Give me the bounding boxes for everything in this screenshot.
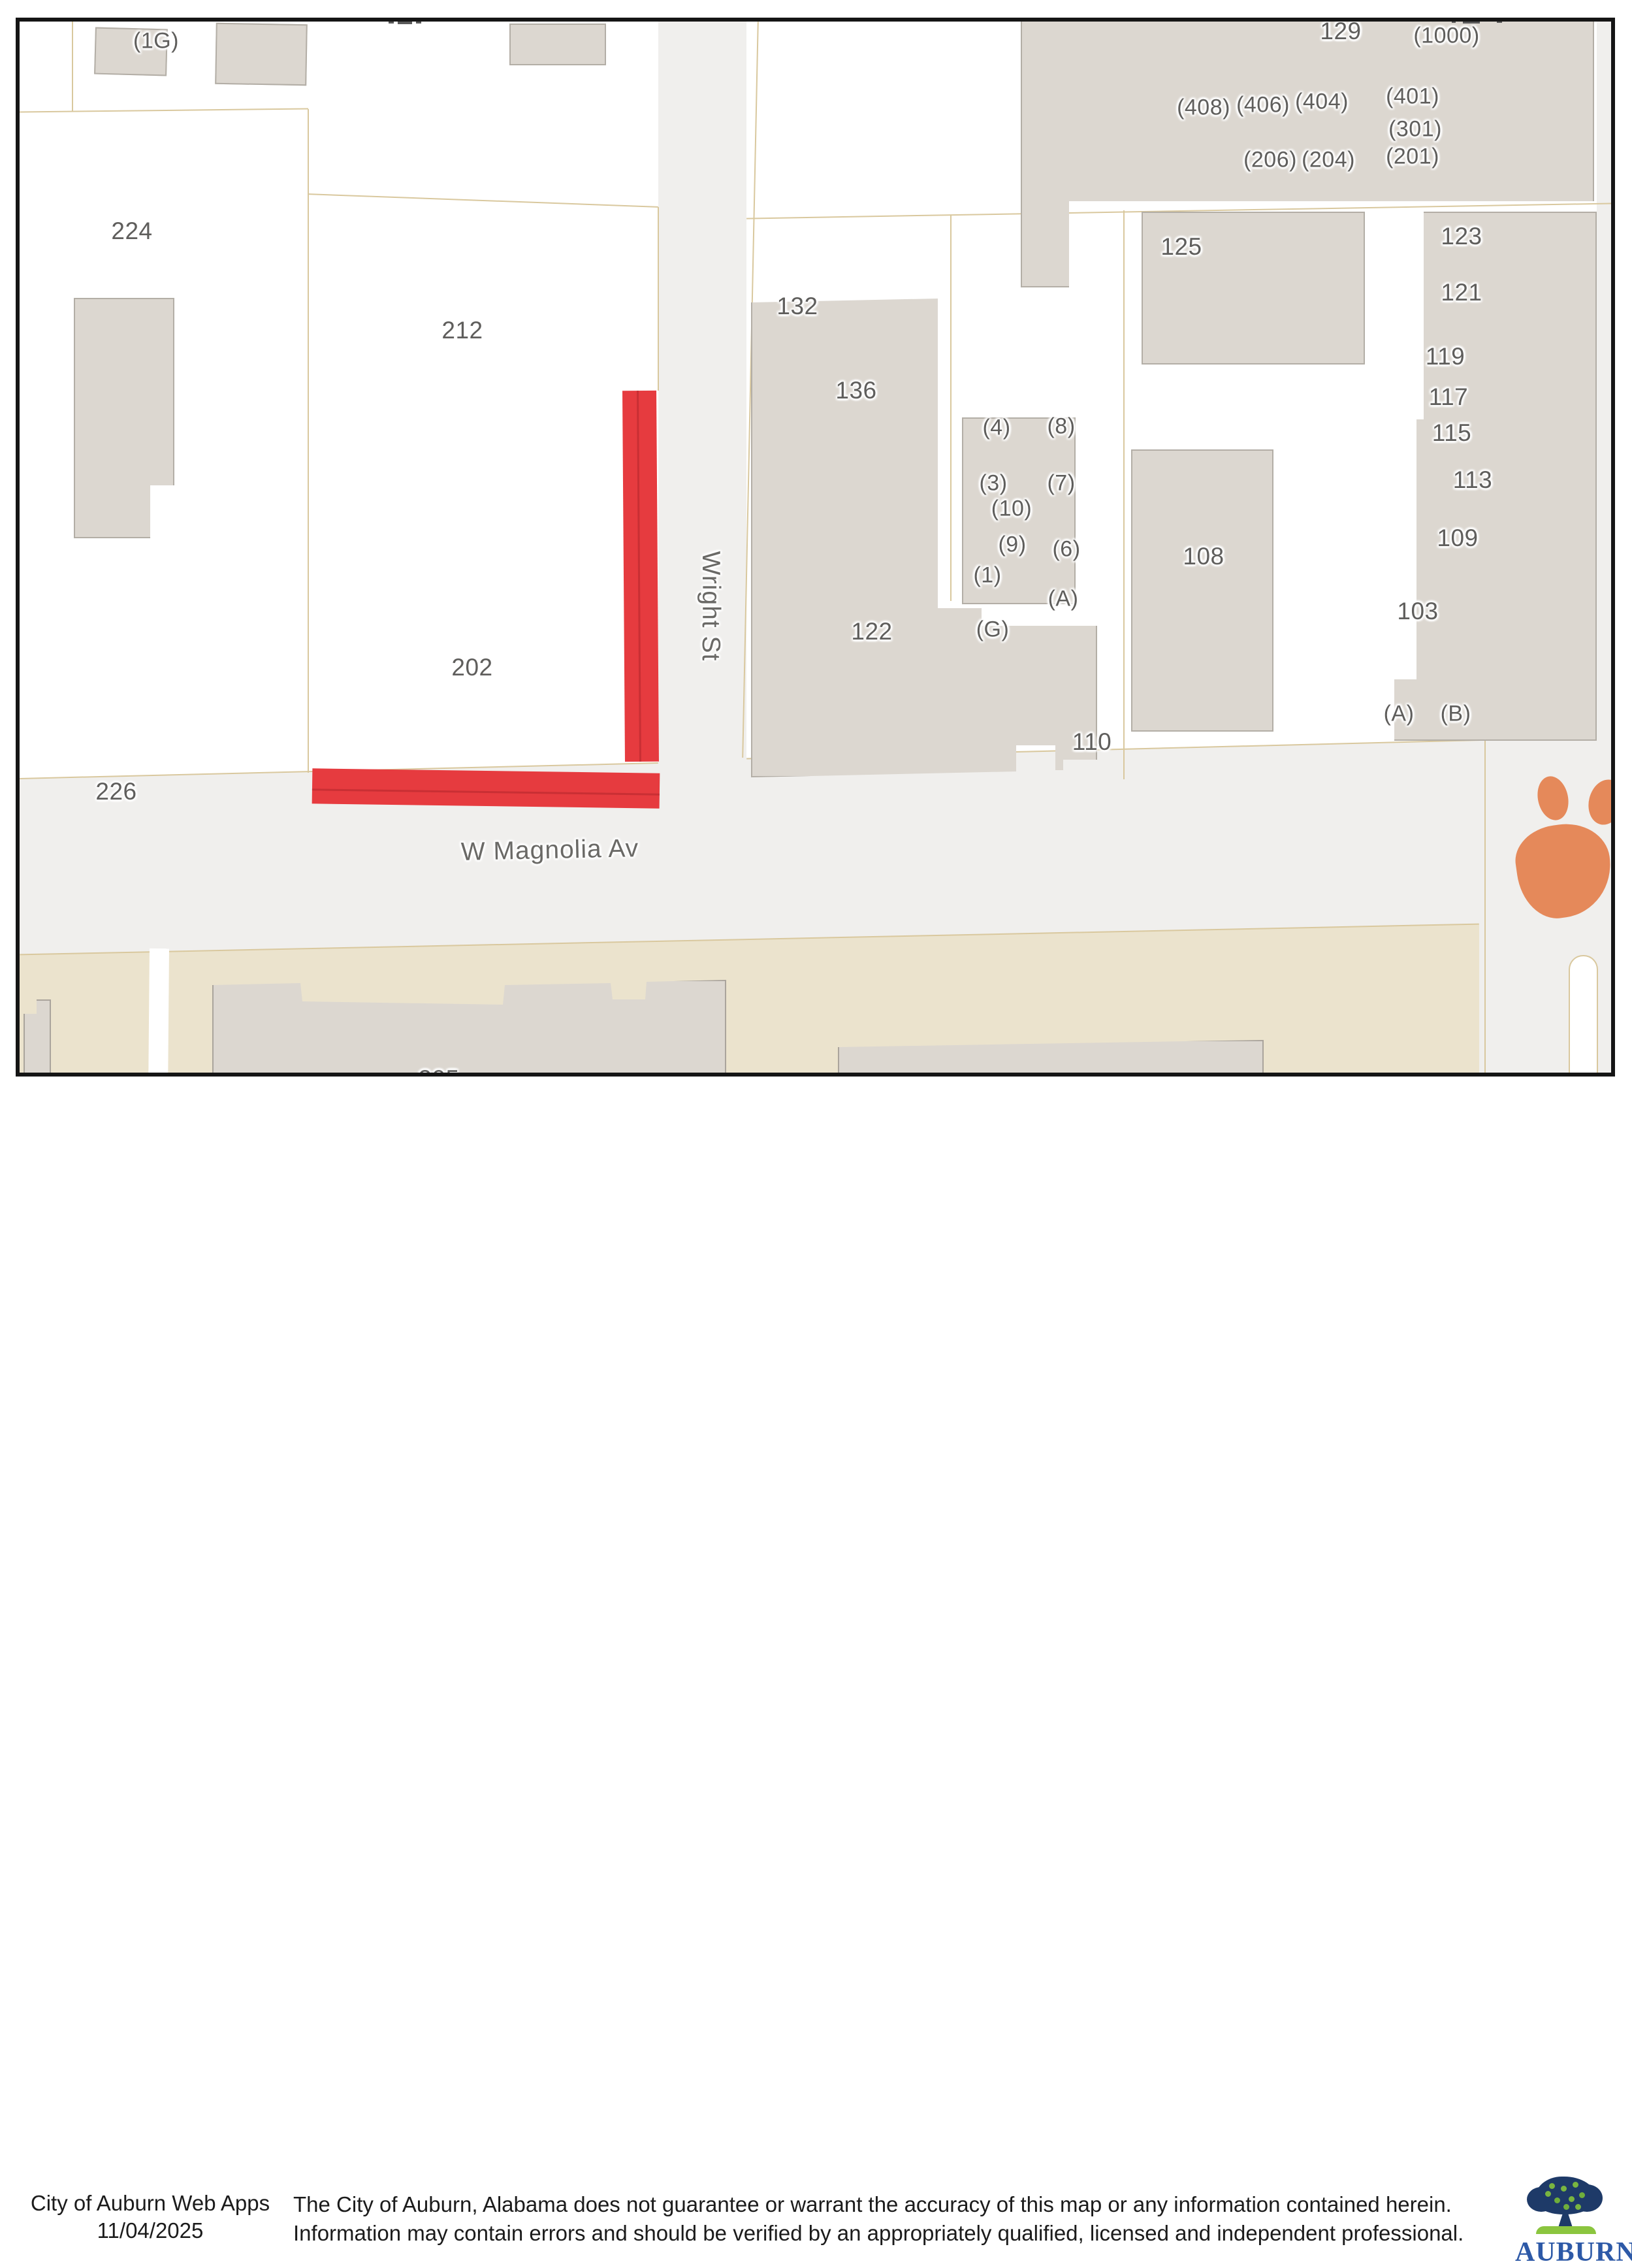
building bbox=[215, 23, 308, 86]
unit-label-9: (9) bbox=[998, 532, 1026, 558]
parcel-line bbox=[1123, 210, 1125, 779]
unit-label-6: (6) bbox=[1052, 537, 1080, 562]
highlight-inner-line bbox=[312, 788, 660, 795]
parcel-line bbox=[950, 216, 952, 601]
clipped-label-fragment bbox=[1497, 22, 1502, 23]
parcel-label-110: 110 bbox=[1072, 728, 1112, 756]
unit-label-404: (404) bbox=[1295, 89, 1349, 115]
disclaimer-line-1: The City of Auburn, Alabama does not gua… bbox=[293, 2191, 1452, 2218]
parcel-label-103: 103 bbox=[1397, 598, 1438, 625]
tiger-paw-pad-icon bbox=[1511, 818, 1615, 924]
tree-leaves-icon bbox=[1549, 2183, 1555, 2189]
app-title: City of Auburn Web Apps bbox=[20, 2190, 281, 2217]
tree-ground-icon bbox=[1536, 2226, 1596, 2234]
unit-label-g: (G) bbox=[976, 617, 1010, 643]
parcel-label-117: 117 bbox=[1429, 383, 1469, 411]
parcel-label-125: 125 bbox=[1160, 233, 1202, 261]
auburn-logo: AUBURN bbox=[1515, 2174, 1626, 2252]
building-108 bbox=[1131, 449, 1273, 732]
street-label-w-magnolia-av: W Magnolia Av bbox=[460, 834, 639, 867]
auburn-map-page: { "map": { "labels": [ {"text":"(1G)","x… bbox=[0, 0, 1632, 1176]
highlight-inner-line bbox=[637, 391, 641, 762]
parcel-line bbox=[308, 109, 309, 773]
parcel-label-122: 122 bbox=[851, 618, 892, 645]
parcel-label-129: 129 bbox=[1320, 18, 1361, 45]
highlight-segment-vertical[interactable] bbox=[622, 391, 659, 762]
unit-label-201: (201) bbox=[1386, 144, 1439, 170]
parcel-label-132: 132 bbox=[776, 293, 818, 320]
driveway-lane bbox=[148, 948, 169, 1077]
clipped-label-fragment bbox=[389, 22, 394, 24]
building bbox=[509, 24, 606, 65]
clipped-label-fragment bbox=[398, 22, 412, 24]
unit-label-3: (3) bbox=[979, 471, 1007, 496]
unit-label-b: (B) bbox=[1441, 702, 1471, 727]
tiger-paw-toe-icon bbox=[1533, 773, 1572, 823]
parcel-label-119: 119 bbox=[1426, 343, 1465, 370]
unit-label-301: (301) bbox=[1388, 117, 1442, 142]
flag-parcel-rounded bbox=[1569, 955, 1598, 1077]
parcel-label-1g: (1G) bbox=[133, 29, 179, 54]
app-title-block: City of Auburn Web Apps 11/04/2025 bbox=[20, 2190, 281, 2244]
map-canvas[interactable]: (1G)224212202226132136122(4)(8)(3)(7)(10… bbox=[16, 18, 1615, 1077]
unit-label-401: (401) bbox=[1386, 84, 1439, 110]
street-label-wright-st: Wright St bbox=[696, 551, 725, 662]
unit-label-a: (A) bbox=[1048, 587, 1079, 612]
unit-label-1000: (1000) bbox=[1413, 24, 1479, 49]
unit-label-7: (7) bbox=[1047, 471, 1075, 496]
parcel-line bbox=[72, 22, 73, 111]
parcel-line bbox=[658, 207, 659, 391]
parcel-label-205-clipped: 205 bbox=[418, 1065, 459, 1077]
parcel-label-212: 212 bbox=[441, 317, 483, 344]
unit-label-1: (1) bbox=[973, 563, 1001, 589]
tiger-paw-toe-icon bbox=[1584, 776, 1615, 829]
unit-label-4: (4) bbox=[982, 415, 1010, 441]
unit-label-206: (206) bbox=[1243, 148, 1297, 173]
unit-label-8: (8) bbox=[1047, 414, 1075, 440]
unit-label-10: (10) bbox=[991, 496, 1032, 522]
logo-wordmark: AUBURN bbox=[1515, 2237, 1626, 2268]
parcel-label-121: 121 bbox=[1441, 279, 1482, 306]
unit-label-a2: (A) bbox=[1384, 702, 1415, 727]
parcel-label-109: 109 bbox=[1437, 525, 1478, 552]
unit-label-408: (408) bbox=[1177, 95, 1230, 121]
map-date: 11/04/2025 bbox=[20, 2217, 281, 2244]
disclaimer-line-2: Information may contain errors and shoul… bbox=[293, 2220, 1464, 2247]
parcel-label-108: 108 bbox=[1183, 543, 1224, 570]
parcel-label-113: 113 bbox=[1453, 466, 1493, 494]
unit-label-406: (406) bbox=[1236, 93, 1290, 118]
unit-label-204: (204) bbox=[1302, 148, 1355, 173]
parcel-label-226: 226 bbox=[95, 778, 136, 805]
parcel-label-224: 224 bbox=[111, 218, 152, 245]
highlight-segment-horizontal[interactable] bbox=[312, 768, 660, 808]
parcel-label-115: 115 bbox=[1432, 419, 1472, 447]
footer: City of Auburn Web Apps 11/04/2025 The C… bbox=[0, 1079, 1632, 1176]
parcel-label-136: 136 bbox=[835, 377, 876, 404]
parcel-label-202: 202 bbox=[451, 654, 492, 681]
parcel-label-123: 123 bbox=[1441, 223, 1482, 250]
clipped-label-fragment bbox=[416, 22, 421, 24]
tree-icon bbox=[1535, 2177, 1596, 2214]
